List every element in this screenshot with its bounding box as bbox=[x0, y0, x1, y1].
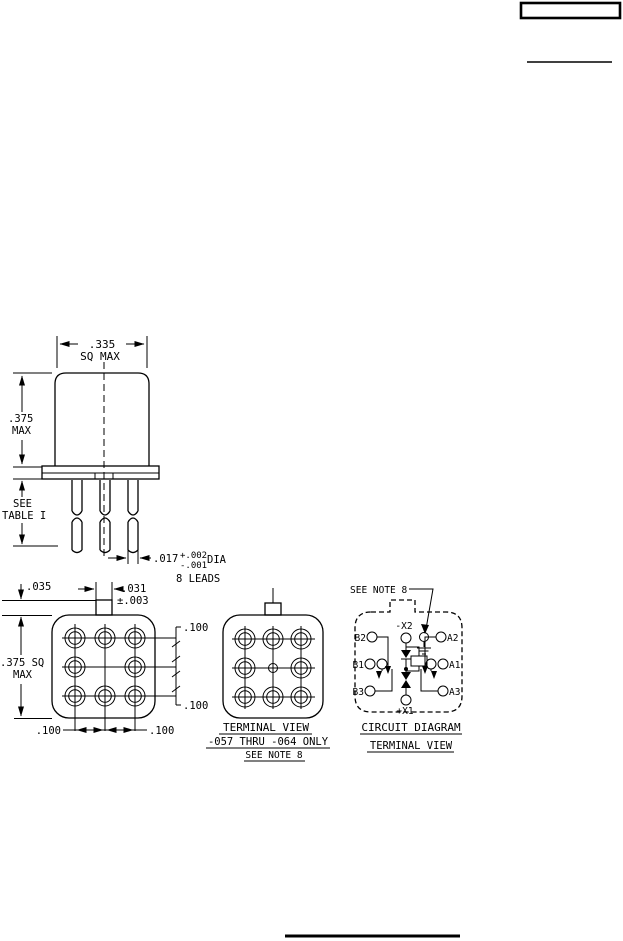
circuit-caption-1: CIRCUIT DIAGRAM bbox=[361, 721, 461, 734]
lead-1 bbox=[72, 480, 82, 553]
circuit-note: SEE NOTE 8 bbox=[350, 585, 407, 596]
terminal-x1 bbox=[401, 695, 411, 705]
terminal-view-caption-1: TERMINAL VIEW bbox=[223, 721, 309, 734]
lead-dia-label: DIA bbox=[207, 554, 227, 566]
junction-dot bbox=[404, 667, 408, 671]
tab-width-value: .031 bbox=[121, 583, 146, 595]
contact-arrow bbox=[422, 666, 428, 674]
dim-can-height-value: .375 bbox=[8, 413, 33, 425]
can-flange bbox=[42, 466, 159, 479]
front-view: .335 SQ MAX .375 MAX SEE TABLE I .017 +.… bbox=[2, 336, 227, 585]
terminal-b1-pivot bbox=[377, 659, 387, 669]
bottom-grid-centerlines bbox=[62, 624, 176, 731]
suppressor-icon-2 bbox=[401, 680, 411, 688]
coil-neg-label: -X2 bbox=[395, 621, 412, 632]
dim-can-width-qual: SQ MAX bbox=[80, 350, 120, 363]
terminal-a2 bbox=[436, 632, 446, 642]
terminal-a1 bbox=[438, 659, 448, 669]
lead-dia-value: .017 bbox=[153, 553, 178, 565]
coil-pos-label: +X1 bbox=[396, 706, 413, 717]
pitch-right-top-value: .100 bbox=[183, 622, 208, 634]
circuit-captions: CIRCUIT DIAGRAM TERMINAL VIEW bbox=[360, 721, 462, 752]
dim-can-width: .335 SQ MAX bbox=[57, 336, 147, 368]
terminal-b3 bbox=[365, 686, 375, 696]
terminal-view-captions: TERMINAL VIEW -057 THRU -064 ONLY SEE NO… bbox=[206, 721, 330, 761]
suppressor-icon bbox=[401, 672, 411, 680]
title-block-box bbox=[521, 3, 620, 18]
contacts-b: B2 B1 B3 bbox=[353, 632, 392, 698]
tab-width-tol: ±.003 bbox=[117, 595, 149, 607]
pitch-right-bottom-value: .100 bbox=[183, 700, 208, 712]
dim-can-height-qual: MAX bbox=[12, 425, 32, 437]
lead-3 bbox=[128, 480, 138, 553]
pitch-bottom-right-value: .100 bbox=[149, 725, 174, 737]
terminal-view-caption-3: SEE NOTE 8 bbox=[245, 750, 302, 761]
note-leader-line bbox=[409, 589, 433, 629]
lead-length-note-2: TABLE I bbox=[2, 510, 46, 522]
bottom-view: .035 .031 ±.003 .375 SQ MAX .100 .100 bbox=[0, 581, 208, 737]
circuit-view: SEE NOTE 8 -X2 +X1 B2 B1 bbox=[350, 585, 462, 752]
contact-arrow bbox=[376, 671, 382, 679]
lead-dia-tol-plus: +.002 bbox=[180, 551, 207, 561]
contact-arrow bbox=[385, 666, 391, 674]
contact-arrow bbox=[431, 671, 437, 679]
terminal-b1 bbox=[365, 659, 375, 669]
terminal-view: TERMINAL VIEW -057 THRU -064 ONLY SEE NO… bbox=[206, 588, 330, 761]
spec-drawing-page: .335 SQ MAX .375 MAX SEE TABLE I .017 +.… bbox=[0, 0, 623, 941]
bottom-index-tab bbox=[96, 600, 112, 615]
terminal-b1-label: B1 bbox=[353, 660, 365, 671]
circuit-caption-2: TERMINAL VIEW bbox=[370, 740, 453, 752]
dim-lead-length: SEE TABLE I bbox=[2, 481, 46, 544]
page-header bbox=[521, 3, 620, 62]
dim-pitch-right: .100 .100 bbox=[172, 622, 208, 712]
terminal-grid-centerlines bbox=[232, 626, 315, 709]
terminal-b2-label: B2 bbox=[355, 633, 366, 644]
dim-tab-height: .035 bbox=[2, 581, 96, 616]
tab-height-value: .035 bbox=[26, 581, 51, 593]
dim-body-size: .375 SQ MAX bbox=[0, 617, 52, 719]
lead-count-note: 8 LEADS bbox=[176, 573, 220, 585]
terminal-a1-label: A1 bbox=[449, 660, 461, 671]
body-size-value: .375 SQ bbox=[0, 657, 44, 669]
terminal-b2 bbox=[367, 632, 377, 642]
dim-tab-width: .031 ±.003 bbox=[78, 582, 149, 607]
terminal-a3-label: A3 bbox=[449, 687, 460, 698]
can-body bbox=[55, 373, 149, 466]
terminal-a2-label: A2 bbox=[447, 633, 458, 644]
terminal-view-caption-2: -057 THRU -064 ONLY bbox=[208, 736, 329, 748]
body-size-qual: MAX bbox=[13, 669, 33, 681]
lead-length-note-1: SEE bbox=[13, 498, 32, 510]
terminal-a3 bbox=[438, 686, 448, 696]
coil-branch: -X2 +X1 bbox=[395, 621, 427, 717]
dim-lead-dia: .017 +.002 -.001 DIA 8 LEADS bbox=[108, 547, 227, 585]
pitch-bottom-left-value: .100 bbox=[36, 725, 61, 737]
diode-icon bbox=[401, 650, 411, 658]
terminal-b3-label: B3 bbox=[353, 687, 364, 698]
terminal-index-tab bbox=[265, 603, 281, 615]
lead-dia-tol-minus: -.001 bbox=[180, 561, 207, 571]
terminal-x2 bbox=[401, 633, 411, 643]
lead-2 bbox=[100, 480, 110, 553]
